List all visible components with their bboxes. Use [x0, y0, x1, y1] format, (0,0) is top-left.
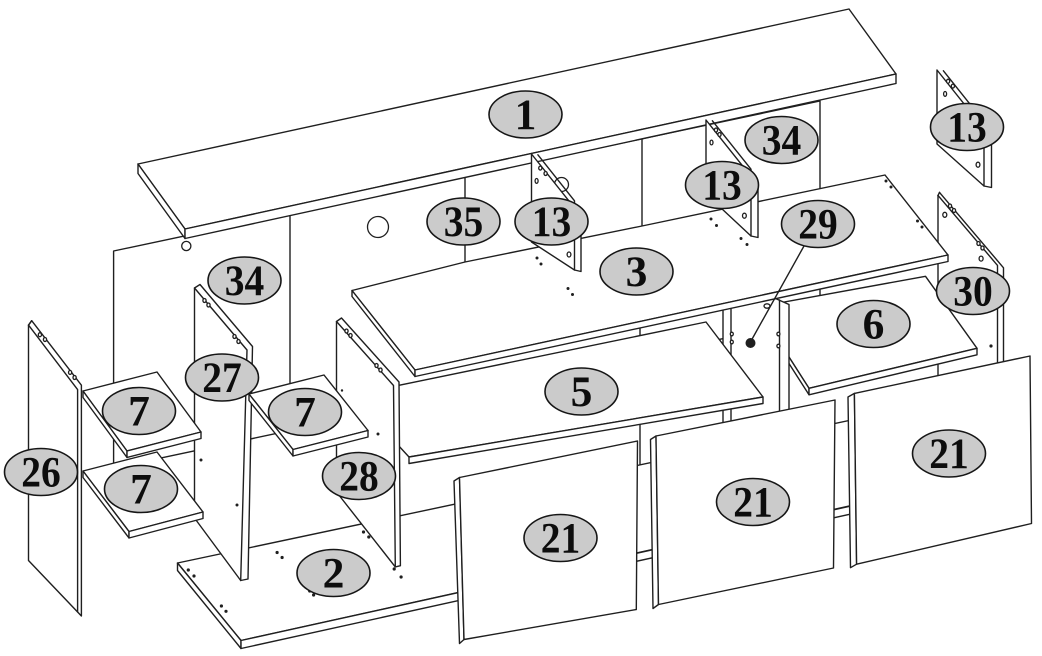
- svg-text:3: 3: [626, 248, 648, 296]
- svg-text:13: 13: [702, 162, 742, 210]
- svg-text:13: 13: [947, 104, 987, 152]
- svg-text:13: 13: [532, 198, 572, 246]
- svg-text:26: 26: [21, 449, 61, 497]
- svg-text:21: 21: [733, 479, 773, 527]
- svg-text:21: 21: [929, 430, 969, 478]
- svg-text:21: 21: [541, 515, 581, 563]
- svg-text:30: 30: [953, 268, 993, 316]
- svg-text:7: 7: [130, 466, 152, 514]
- svg-text:1: 1: [515, 91, 537, 139]
- svg-text:7: 7: [128, 388, 150, 436]
- svg-text:6: 6: [863, 301, 885, 349]
- svg-text:28: 28: [339, 453, 379, 501]
- svg-text:35: 35: [444, 198, 484, 246]
- svg-text:27: 27: [202, 354, 242, 402]
- svg-text:2: 2: [323, 550, 345, 598]
- svg-text:34: 34: [225, 257, 265, 305]
- svg-text:5: 5: [571, 368, 593, 416]
- svg-text:7: 7: [294, 389, 316, 437]
- svg-text:29: 29: [798, 201, 838, 249]
- svg-text:34: 34: [762, 117, 802, 165]
